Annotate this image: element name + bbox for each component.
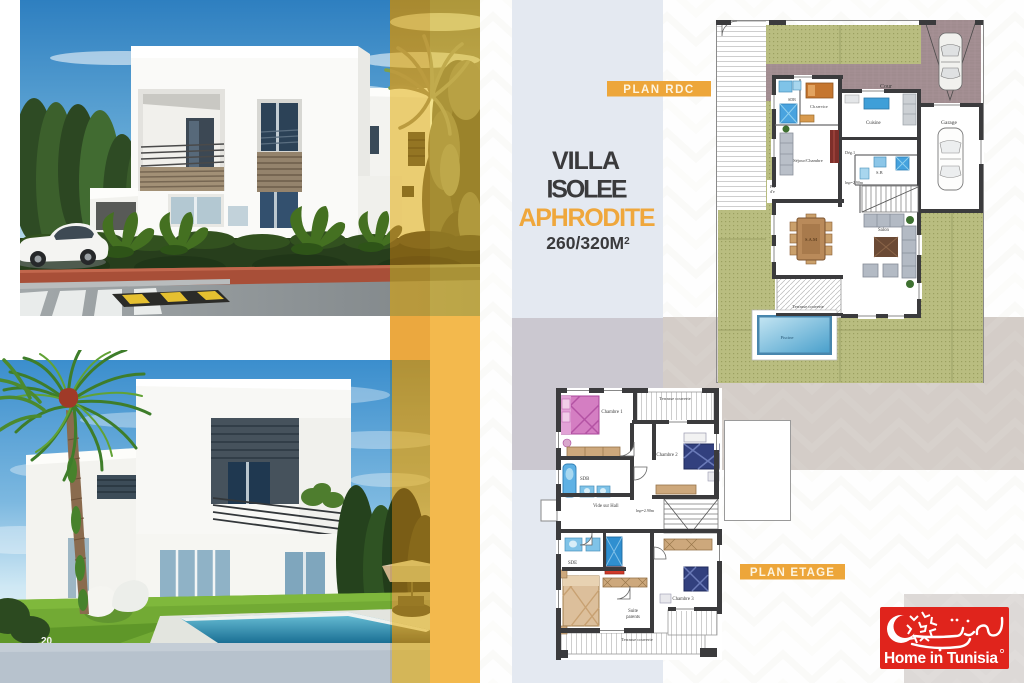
svg-text:260/320M2: 260/320M2 <box>546 233 630 253</box>
svg-text:Chambre 3: Chambre 3 <box>672 597 694 602</box>
svg-text:Garage: Garage <box>941 120 957 126</box>
svg-text:Chambre 1: Chambre 1 <box>601 410 623 415</box>
svg-text:SDE: SDE <box>568 561 577 566</box>
svg-text:Terrasse couverte: Terrasse couverte <box>659 396 691 401</box>
svg-text:S.A.M: S.A.M <box>805 237 817 242</box>
svg-text:VILLA: VILLA <box>552 147 620 175</box>
svg-text:Home in Tunisia: Home in Tunisia <box>884 650 998 667</box>
svg-text:APHRODITE: APHRODITE <box>519 204 656 232</box>
svg-text:PLAN ETAGE: PLAN ETAGE <box>750 567 835 579</box>
svg-text:hsp=2.90m: hsp=2.90m <box>845 180 864 185</box>
svg-text:Terrasse couverte: Terrasse couverte <box>792 304 824 309</box>
svg-text:Terrasse couverte: Terrasse couverte <box>621 637 653 642</box>
svg-text:Suite: Suite <box>628 609 638 614</box>
svg-text:ISOLEE: ISOLEE <box>547 176 628 204</box>
svg-text:Chambre 2: Chambre 2 <box>656 453 678 458</box>
svg-text:SDB: SDB <box>580 477 589 482</box>
svg-text:hsp=2.90m: hsp=2.90m <box>636 508 655 513</box>
svg-text:Dég.1: Dég.1 <box>845 150 855 155</box>
svg-text:Ch.service: Ch.service <box>810 104 828 109</box>
svg-text:SDB: SDB <box>788 97 796 102</box>
svg-text:parents: parents <box>626 615 640 620</box>
svg-text:Piscine: Piscine <box>781 335 794 340</box>
svg-text:Séjour/Chambre: Séjour/Chambre <box>793 158 823 163</box>
svg-text:PLAN RDC: PLAN RDC <box>623 84 694 96</box>
svg-text:Vide sur Hall: Vide sur Hall <box>593 504 619 509</box>
svg-text:S.B: S.B <box>876 170 883 175</box>
svg-text:Salon: Salon <box>878 228 890 233</box>
svg-text:Cuisine: Cuisine <box>866 121 881 126</box>
